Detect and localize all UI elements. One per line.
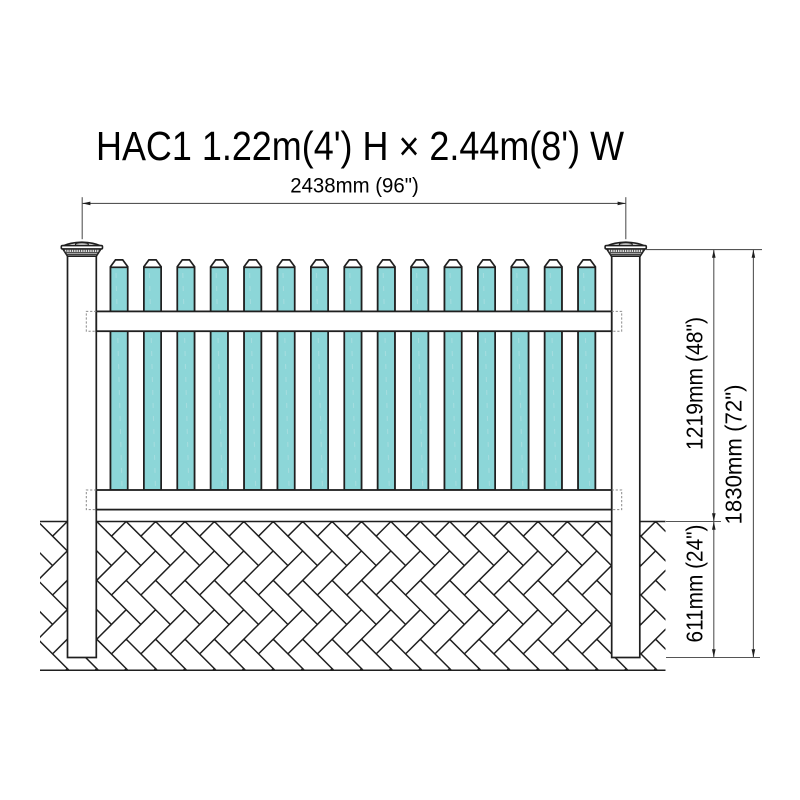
svg-text:611mm (24"): 611mm (24") [682,525,708,643]
svg-text:1830mm (72"): 1830mm (72") [721,385,747,525]
svg-text:2438mm (96"): 2438mm (96") [290,174,419,198]
svg-text:1219mm (48"): 1219mm (48") [682,317,708,450]
svg-text:HAC1 1.22m(4') H × 2.44m(8') W: HAC1 1.22m(4') H × 2.44m(8') W [96,123,624,169]
